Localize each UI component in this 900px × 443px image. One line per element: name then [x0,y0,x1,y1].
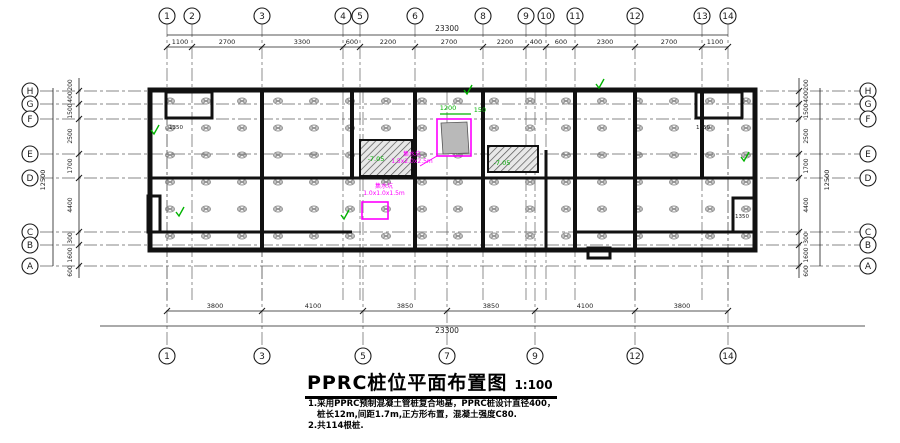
inner-dim-label: 1350 [696,125,710,131]
dim-label: 2700 [661,38,678,46]
dim-label-side: 1600 [67,247,74,262]
inner-dim-label: 1350 [735,214,749,220]
dim-label: 3800 [207,302,224,310]
pile-symbol [562,206,571,212]
dim-label-side: 1700 [803,158,810,173]
dim-label-side: 200 [67,79,74,91]
axis-bubble-label: 1 [164,352,170,362]
pile-symbol [454,233,463,239]
dim-label: 3850 [397,302,414,310]
pile-symbol [418,179,427,185]
pile-symbol [166,179,175,185]
pile-symbol [238,206,247,212]
title-block: PPRC桩位平面布置图1:100 [305,368,635,399]
general-notes: 1.采用PPRC预制混凝土管桩复合地基，PPRC桩设计直径400，桩长12m,间… [308,399,638,432]
dim-label-side: 600 [803,265,810,277]
axis-bubble-label: 14 [722,352,734,362]
axis-bubble-label: 8 [480,12,486,22]
pile-symbol [382,98,391,104]
drawing-scale: 1:100 [514,378,552,392]
axis-bubble-label: 9 [532,352,538,362]
dim-label-side: 4400 [803,197,810,212]
dim-label-side: 1500 [803,103,810,118]
pile-symbol [346,206,355,212]
axis-bubble-label: 5 [360,352,366,362]
pile-symbol [382,233,391,239]
pile-symbol [562,179,571,185]
pile-symbol [562,98,571,104]
pile-symbol [598,125,607,131]
dim-label: 3300 [294,38,311,46]
pit-shading [441,122,469,154]
axis-bubble-label: E [865,150,871,160]
dim-total-side: 12500 [39,170,47,191]
pile-symbol [598,233,607,239]
dim-label-side: 4400 [67,197,74,212]
pile-symbol [382,125,391,131]
pile-symbol [526,98,535,104]
pile-symbol [202,233,211,239]
green-annotation: -7.05 [494,159,511,167]
dim-label: 3800 [674,302,691,310]
pile-symbol [598,206,607,212]
pile-symbol [238,233,247,239]
pile-symbol [310,98,319,104]
pile-symbol [490,179,499,185]
axis-bubble-label: 10 [540,12,552,22]
pile-symbol [526,206,535,212]
axis-bubble-label: G [27,100,34,110]
axis-bubble-label: 9 [523,12,529,22]
dim-label: 1100 [707,38,724,46]
pile-symbol [490,98,499,104]
pile-symbol [526,179,535,185]
building-walls [148,90,755,258]
pile-symbol [598,98,607,104]
axis-bubble-label: 11 [569,12,580,22]
sump-pit-label: 集水坑1.0x1.0x1.5m [363,182,405,197]
pile-symbol [382,206,391,212]
axis-bubble-label: 6 [412,12,418,22]
pile-symbol [670,152,679,158]
dim-label-side: 1600 [803,247,810,262]
pile-symbol [454,206,463,212]
pile-symbol [742,125,751,131]
pile-symbol [490,233,499,239]
dim-label-side: 1700 [67,158,74,173]
pile-symbol [706,98,715,104]
pile-symbol [562,152,571,158]
dim-label-side: 1500 [67,103,74,118]
pile-symbol [706,152,715,158]
dim-label: 2700 [219,38,236,46]
green-check-mark [176,207,184,216]
axis-bubble-label: 13 [696,12,707,22]
pile-symbol [598,179,607,185]
pile-symbol [562,233,571,239]
pile-symbol [526,233,535,239]
axis-bubble-label: A [865,262,872,272]
pile-symbol [742,179,751,185]
pile-symbol [706,179,715,185]
axis-bubble-label: 12 [629,12,640,22]
pile-symbol [670,125,679,131]
axis-bubble-label: D [865,174,872,184]
pile-symbol [274,98,283,104]
pile-symbol [310,152,319,158]
pile-symbol [202,152,211,158]
pile-symbol [670,98,679,104]
axis-bubble-label: 12 [629,352,640,362]
pile-symbol [310,233,319,239]
dim-label: 2300 [597,38,614,46]
pile-symbol [166,152,175,158]
dim-label: 600 [346,38,358,46]
dim-label-side: 400 [803,91,810,103]
dim-label-side: 2500 [803,128,810,143]
axis-bubble-label: F [27,115,32,125]
pile-symbol [202,206,211,212]
axis-grid-lines [40,24,860,348]
top-left-recess [166,92,212,118]
axis-bubble-label: 2 [189,12,195,22]
dim-label: 600 [555,38,567,46]
axis-bubble-label: B [865,241,871,251]
dim-label: 2200 [497,38,514,46]
green-annotation: -7.05 [368,155,385,163]
pile-symbol [310,179,319,185]
dim-label: 3850 [483,302,500,310]
pile-symbol [706,233,715,239]
pile-symbol [274,152,283,158]
dim-label-side: 400 [67,91,74,103]
pile-symbol [310,206,319,212]
note-line: 2.共114根桩. [308,421,638,432]
pile-symbol [418,206,427,212]
axis-bubble-label: 7 [444,352,450,362]
pile-symbol [742,233,751,239]
note-line: 1.采用PPRC预制混凝土管桩复合地基，PPRC桩设计直径400， [308,399,638,410]
pile-symbol [562,125,571,131]
green-check-mark [596,79,604,88]
pile-symbol [274,125,283,131]
axis-bubble-label: E [27,150,33,160]
pile-symbol [346,233,355,239]
pile-symbol [274,206,283,212]
axis-bubble-label: 5 [357,12,363,22]
pile-symbol [418,98,427,104]
pile-symbol [238,179,247,185]
dim-label: 4100 [305,302,322,310]
bottom-stub [588,248,610,258]
dim-label: 2200 [380,38,397,46]
dim-label-side: 2500 [67,128,74,143]
axis-bubble-label: A [27,262,34,272]
dim-label-side: 200 [803,79,810,91]
dim-label-side: 300 [67,232,74,244]
dim-total-bottom: 23300 [435,326,459,335]
note-line: 桩长12m,间距1.7m,正方形布置，混凝土强度C80. [308,410,638,421]
pile-symbol [598,152,607,158]
dim-label: 1100 [172,38,189,46]
pile-symbol [202,98,211,104]
dim-label: 400 [530,38,542,46]
green-annotation: 150 [474,106,486,114]
pile-symbol [490,206,499,212]
pile-symbol [454,179,463,185]
pile-symbol [418,125,427,131]
dim-label: 4100 [577,302,594,310]
axis-bubble-label: 3 [259,352,265,362]
green-check-mark [341,210,349,219]
axis-bubble-label: D [27,174,34,184]
dim-total-side: 12500 [823,170,831,191]
pile-symbol [238,152,247,158]
pile-symbol [238,98,247,104]
dim-label-side: 600 [67,265,74,277]
pile-symbol [238,125,247,131]
axis-bubble-label: 3 [259,12,265,22]
pile-symbol [490,125,499,131]
pile-symbol [346,179,355,185]
axis-bubble-label: B [27,241,33,251]
pile-symbol [526,125,535,131]
pile-symbol [274,179,283,185]
axis-bubble-label: G [865,100,872,110]
axis-bubble-label: 1 [164,12,170,22]
green-annotation: 1200 [440,104,457,112]
pile-symbol [166,206,175,212]
pile-symbol [418,233,427,239]
dim-label: 2700 [441,38,458,46]
pile-symbol [670,179,679,185]
pile-symbol [202,179,211,185]
cad-drawing-screen: 2330011002700330060022002700220040060023… [0,0,900,443]
pile-symbol [274,233,283,239]
axis-bubble-label: 14 [722,12,734,22]
axis-bubble-label: 4 [340,12,346,22]
dim-total-top: 23300 [435,24,459,33]
pile-symbol [202,125,211,131]
inner-dim-label: 1350 [169,125,183,131]
pile-symbol [670,233,679,239]
pile-symbol [310,125,319,131]
pile-symbol [742,206,751,212]
axis-bubble-label: F [865,115,870,125]
drawing-title: PPRC桩位平面布置图 [307,372,507,394]
pile-symbol [706,206,715,212]
dim-label-side: 300 [803,232,810,244]
pile-symbol [166,233,175,239]
pile-symbol [670,206,679,212]
drawing-title-underline: PPRC桩位平面布置图1:100 [305,368,557,399]
